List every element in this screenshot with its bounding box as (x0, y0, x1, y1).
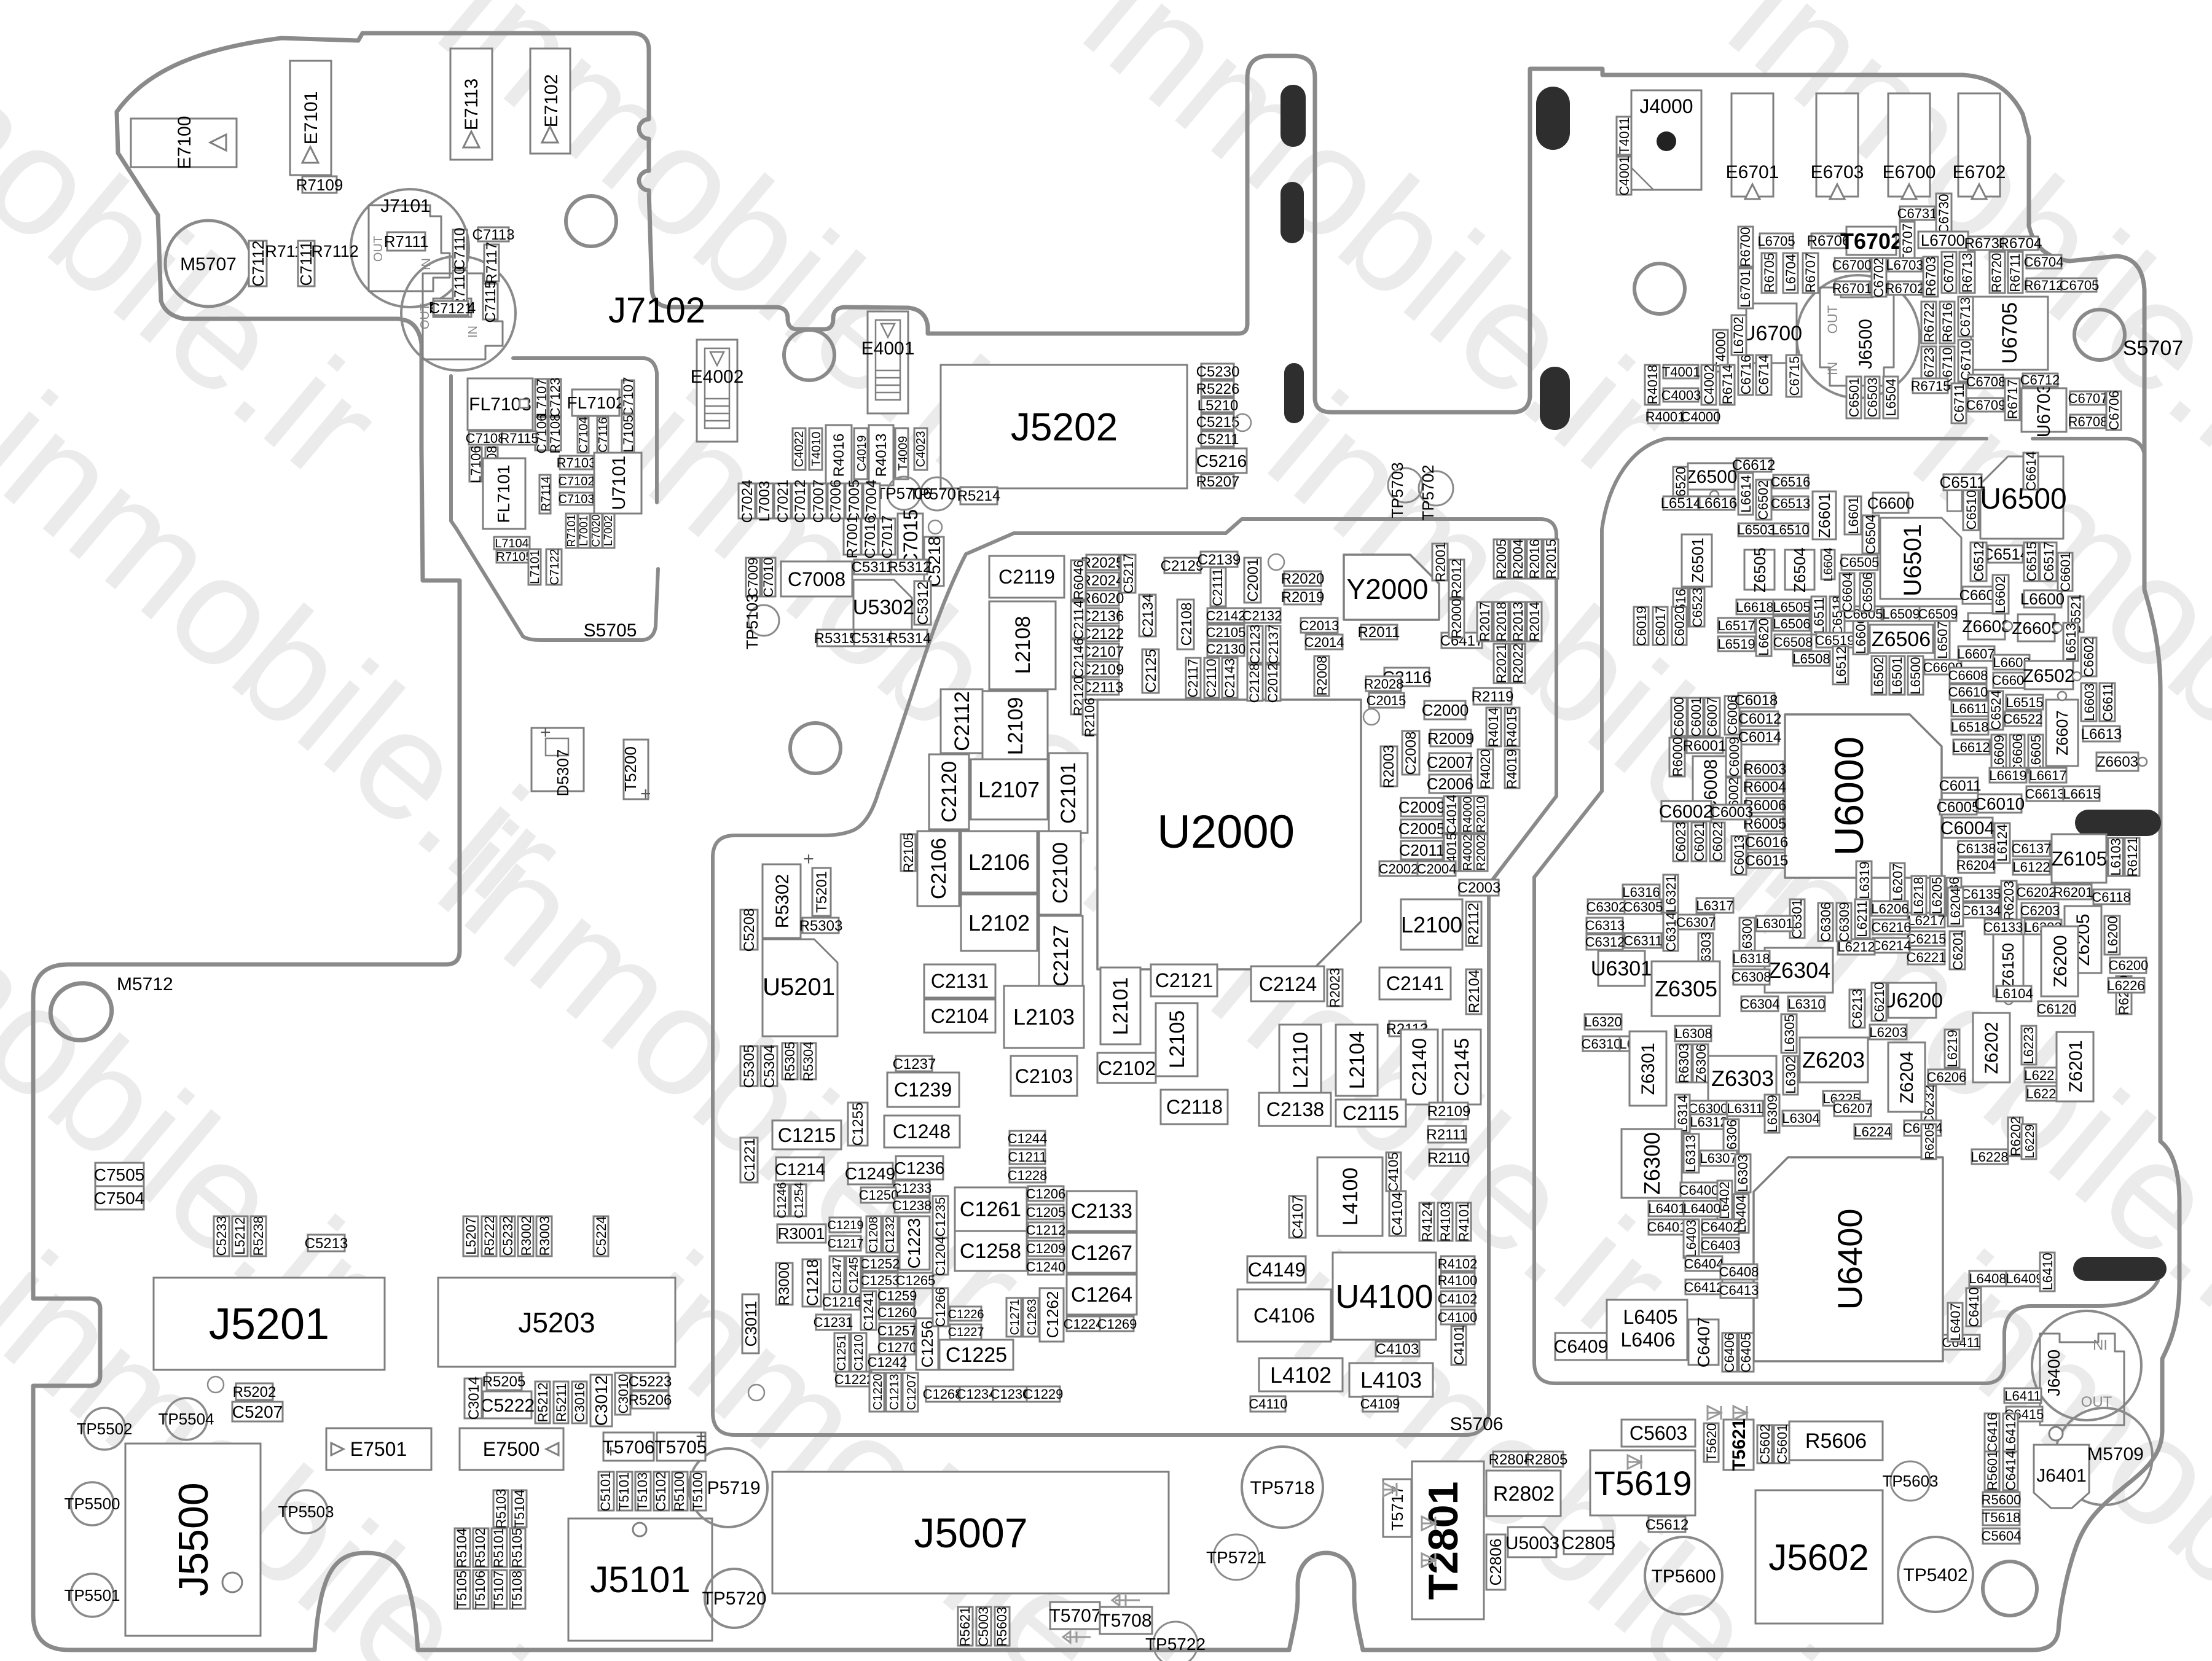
svg-text:C7021: C7021 (775, 480, 791, 523)
svg-text:C2805: C2805 (1561, 1533, 1615, 1554)
svg-text:C6405: C6405 (1738, 1333, 1754, 1373)
svg-text:L6518: L6518 (1951, 719, 1988, 735)
svg-text:TP5718: TP5718 (1250, 1478, 1314, 1498)
svg-text:C6716: C6716 (1738, 355, 1754, 395)
svg-text:L6321: L6321 (1663, 875, 1679, 912)
svg-text:Z6505: Z6505 (1751, 547, 1769, 593)
svg-text:C2002: C2002 (1379, 861, 1419, 877)
svg-text:R3001: R3001 (778, 1224, 825, 1243)
svg-text:C1246: C1246 (775, 1182, 789, 1219)
svg-text:C7505: C7505 (94, 1165, 145, 1184)
svg-text:C1242: C1242 (868, 1354, 908, 1370)
svg-text:R5105: R5105 (509, 1528, 525, 1568)
svg-text:C6305: C6305 (1623, 899, 1663, 915)
svg-text:C7015: C7015 (900, 509, 922, 567)
svg-text:R5303: R5303 (799, 918, 843, 934)
svg-text:L6519: L6519 (1717, 636, 1755, 652)
svg-text:L6501: L6501 (1889, 657, 1905, 694)
svg-text:C2806: C2806 (1486, 1539, 1505, 1586)
svg-text:C1220: C1220 (871, 1374, 885, 1410)
svg-text:L6229: L6229 (2023, 1124, 2037, 1159)
svg-text:Z6502: Z6502 (2022, 666, 2074, 686)
svg-text:L6513: L6513 (2063, 623, 2079, 660)
svg-text:R6201: R6201 (2053, 885, 2093, 900)
svg-text:C2009: C2009 (1398, 798, 1446, 816)
svg-text:L6207: L6207 (1890, 863, 1905, 901)
svg-text:L6301: L6301 (1755, 916, 1793, 931)
svg-text:J6401: J6401 (2036, 1466, 2087, 1486)
svg-text:Z6204: Z6204 (1897, 1051, 1917, 1103)
svg-text:L6104: L6104 (1995, 986, 2033, 1001)
svg-text:C1271: C1271 (1008, 1299, 1022, 1335)
svg-text:U6703: U6703 (2034, 383, 2054, 437)
svg-text:Z6500: Z6500 (1685, 467, 1737, 487)
svg-text:L6615: L6615 (2063, 786, 2100, 802)
svg-text:L6309: L6309 (1765, 1095, 1780, 1132)
svg-text:T5618: T5618 (1982, 1510, 2020, 1525)
svg-text:C7016: C7016 (862, 515, 879, 559)
svg-text:C2141: C2141 (1386, 972, 1444, 995)
svg-text:C2109: C2109 (1081, 662, 1124, 678)
svg-text:C1205: C1205 (1026, 1205, 1066, 1220)
svg-text:C1258: C1258 (960, 1240, 1021, 1263)
svg-text:E7501: E7501 (350, 1438, 407, 1460)
svg-text:R2005: R2005 (1494, 539, 1509, 579)
svg-text:C1214: C1214 (775, 1160, 826, 1179)
svg-text:C3014: C3014 (466, 1377, 482, 1420)
svg-text:Z6200: Z6200 (2050, 935, 2071, 987)
svg-text:L6616: L6616 (1696, 495, 1738, 512)
svg-text:C5305: C5305 (741, 1045, 758, 1088)
svg-text:C2145: C2145 (1451, 1038, 1473, 1096)
svg-text:C1260: C1260 (877, 1305, 917, 1320)
svg-text:C1207: C1207 (905, 1374, 919, 1410)
svg-text:L6219: L6219 (1945, 1030, 1960, 1067)
svg-text:C6402: C6402 (1701, 1219, 1741, 1235)
svg-text:M5712: M5712 (117, 974, 173, 995)
svg-text:C2012: C2012 (1265, 663, 1281, 703)
svg-text:C7012: C7012 (792, 480, 809, 523)
svg-text:R6716: R6716 (1940, 303, 1955, 343)
svg-text:L6514: L6514 (1661, 495, 1702, 512)
svg-text:C6700: C6700 (1832, 257, 1872, 273)
svg-text:C2138: C2138 (1266, 1098, 1324, 1120)
svg-text:C2117: C2117 (1185, 659, 1201, 697)
svg-text:R6701: R6701 (1832, 281, 1872, 296)
svg-text:TP5721: TP5721 (1206, 1548, 1266, 1567)
svg-text:L2101: L2101 (1109, 977, 1132, 1036)
svg-text:C1215: C1215 (778, 1124, 836, 1146)
svg-text:L6407: L6407 (1948, 1303, 1963, 1340)
svg-text:C1210: C1210 (852, 1335, 866, 1371)
svg-text:R6046: R6046 (1071, 560, 1086, 600)
svg-text:C1244: C1244 (1008, 1131, 1048, 1146)
svg-text:R6704: R6704 (1999, 235, 2042, 252)
svg-text:L6313: L6313 (1683, 1135, 1698, 1172)
svg-text:C4002: C4002 (1701, 365, 1717, 405)
svg-text:C1248: C1248 (893, 1120, 951, 1143)
svg-text:C6524: C6524 (1988, 690, 2004, 730)
svg-text:R5238: R5238 (251, 1216, 266, 1256)
svg-text:L6320: L6320 (1584, 1014, 1622, 1030)
svg-text:R5603: R5603 (994, 1607, 1010, 1647)
svg-text:C6731: C6731 (1897, 206, 1937, 221)
svg-text:C5102: C5102 (653, 1472, 669, 1512)
svg-text:L6302: L6302 (1783, 1056, 1798, 1093)
svg-text:C4014: C4014 (1444, 795, 1459, 835)
svg-text:L6619: L6619 (1989, 768, 2026, 783)
svg-text:C6611: C6611 (2100, 682, 2116, 721)
svg-text:C6308: C6308 (1732, 969, 1771, 985)
svg-text:Z6303: Z6303 (1711, 1066, 1774, 1091)
svg-text:R2025: R2025 (1081, 555, 1124, 571)
svg-text:C2124: C2124 (1259, 973, 1317, 995)
svg-text:L6103: L6103 (2108, 838, 2124, 875)
svg-text:L6224: L6224 (1854, 1124, 1891, 1139)
svg-text:FL7101: FL7101 (494, 465, 513, 523)
svg-text:R6003: R6003 (1743, 761, 1787, 778)
svg-text:TP5603: TP5603 (1882, 1472, 1938, 1490)
svg-text:Z6201: Z6201 (2066, 1040, 2086, 1092)
svg-text:U6000: U6000 (1826, 737, 1872, 856)
svg-text:T4009: T4009 (896, 436, 910, 471)
svg-text:C4003: C4003 (1661, 388, 1701, 403)
svg-text:C6516: C6516 (1771, 474, 1811, 490)
svg-text:E7100: E7100 (175, 116, 195, 170)
svg-text:L2107: L2107 (978, 777, 1040, 802)
svg-text:R2004: R2004 (1510, 539, 1526, 579)
svg-text:L6310: L6310 (1787, 996, 1825, 1012)
svg-text:C2133: C2133 (1071, 1200, 1132, 1223)
svg-text:L6500: L6500 (1908, 657, 1923, 694)
svg-text:L6405: L6405 (1623, 1306, 1678, 1328)
svg-text:J7101: J7101 (380, 196, 431, 216)
svg-text:R2010: R2010 (1475, 797, 1488, 833)
svg-text:R5312: R5312 (888, 559, 931, 576)
svg-text:L6602: L6602 (1993, 576, 2008, 613)
svg-text:T4001: T4001 (1662, 364, 1700, 380)
svg-text:L6200: L6200 (2105, 916, 2120, 953)
svg-text:C1255: C1255 (850, 1103, 866, 1146)
svg-text:L6703: L6703 (1886, 257, 1923, 273)
svg-text:L4102: L4102 (1270, 1362, 1332, 1388)
svg-text:L6515: L6515 (2006, 695, 2043, 710)
svg-text:C6017: C6017 (1653, 606, 1668, 646)
svg-text:R5211: R5211 (554, 1383, 569, 1421)
svg-text:C4023: C4023 (914, 431, 928, 467)
svg-text:R7117: R7117 (484, 242, 500, 284)
svg-text:C2140: C2140 (1408, 1038, 1430, 1096)
svg-text:U5003: U5003 (1505, 1533, 1559, 1554)
svg-text:Z6202: Z6202 (1982, 1022, 2002, 1074)
svg-text:L7001: L7001 (578, 515, 590, 546)
svg-text:C6502: C6502 (1755, 480, 1771, 520)
svg-text:L6410: L6410 (2040, 1253, 2055, 1290)
svg-text:R2020: R2020 (1281, 571, 1325, 587)
svg-text:R2023: R2023 (1327, 968, 1343, 1008)
svg-text:C4106: C4106 (1253, 1304, 1315, 1327)
svg-text:C1226: C1226 (948, 1308, 984, 1321)
svg-text:FL7102: FL7102 (567, 393, 626, 412)
svg-text:TP5502: TP5502 (76, 1420, 132, 1438)
svg-text:R5601: R5601 (1985, 1451, 2000, 1491)
svg-text:L2102: L2102 (968, 910, 1030, 936)
svg-text:C1257: C1257 (877, 1323, 917, 1339)
svg-text:Z6304: Z6304 (1768, 958, 1830, 983)
svg-text:R4014: R4014 (1486, 708, 1501, 748)
svg-text:L6607: L6607 (1957, 646, 1994, 662)
svg-text:R5102: R5102 (473, 1528, 488, 1568)
svg-text:C7107: C7107 (621, 377, 636, 417)
svg-text:J5007: J5007 (914, 1510, 1027, 1557)
svg-text:C6307: C6307 (1676, 915, 1716, 930)
svg-text:C6004: C6004 (1940, 818, 1994, 838)
svg-text:L6502: L6502 (1871, 657, 1886, 694)
svg-text:E6701: E6701 (1726, 162, 1779, 182)
svg-text:C3012: C3012 (592, 1375, 611, 1426)
svg-text:Z6504: Z6504 (1790, 547, 1809, 593)
svg-text:C7008: C7008 (788, 568, 845, 590)
svg-text:TP5703: TP5703 (1388, 462, 1406, 518)
svg-text:C5224: C5224 (594, 1216, 609, 1256)
svg-text:C6200: C6200 (2109, 958, 2149, 973)
svg-text:C5602: C5602 (1757, 1425, 1773, 1464)
svg-text:T5201: T5201 (814, 871, 830, 913)
svg-text:C4103: C4103 (1376, 1341, 1419, 1358)
svg-text:C6612: C6612 (1732, 457, 1776, 474)
svg-text:C5304: C5304 (761, 1045, 778, 1088)
svg-text:OUT: OUT (372, 236, 385, 262)
svg-text:C6018: C6018 (1735, 692, 1778, 709)
svg-text:L6508: L6508 (1792, 651, 1830, 666)
svg-text:C5603: C5603 (1630, 1422, 1687, 1444)
svg-text:C6401: C6401 (1647, 1219, 1687, 1235)
svg-text:C6213: C6213 (1849, 989, 1865, 1029)
svg-text:C5213: C5213 (305, 1235, 348, 1252)
svg-text:L6601: L6601 (1846, 496, 1861, 534)
svg-text:C6412: C6412 (1684, 1280, 1724, 1295)
svg-text:C1267: C1267 (1071, 1241, 1132, 1265)
svg-text:R5600: R5600 (1982, 1492, 2022, 1507)
svg-text:C2111: C2111 (1210, 568, 1225, 606)
svg-text:C6019: C6019 (1634, 606, 1649, 646)
svg-text:C7116: C7116 (597, 417, 610, 452)
svg-text:C1223: C1223 (904, 1218, 924, 1269)
svg-text:Z6300: Z6300 (1639, 1132, 1665, 1195)
svg-text:J5201: J5201 (209, 1300, 329, 1349)
svg-text:C6604: C6604 (1840, 573, 1855, 612)
svg-text:C4104: C4104 (1389, 1192, 1406, 1236)
svg-text:R6700: R6700 (1738, 227, 1753, 267)
svg-text:R2022: R2022 (1510, 644, 1526, 684)
svg-text:C2118: C2118 (1166, 1096, 1223, 1118)
svg-text:R2016: R2016 (1527, 539, 1542, 579)
svg-text:Z6601: Z6601 (1815, 493, 1834, 538)
svg-text:C2000: C2000 (1422, 701, 1469, 719)
svg-text:C7010: C7010 (761, 558, 776, 598)
svg-text:C1219: C1219 (828, 1219, 864, 1232)
svg-text:R5202: R5202 (233, 1384, 276, 1401)
svg-text:R2011: R2011 (1358, 624, 1400, 641)
svg-text:C6406: C6406 (1722, 1333, 1737, 1373)
svg-text:M5709: M5709 (2087, 1444, 2144, 1464)
svg-text:R2111: R2111 (1426, 1127, 1467, 1143)
svg-text:T5107: T5107 (491, 1571, 506, 1609)
svg-text:L6318: L6318 (1732, 951, 1770, 966)
svg-text:C1213: C1213 (888, 1374, 901, 1410)
svg-text:C6400: C6400 (1679, 1182, 1719, 1198)
svg-text:L6504: L6504 (1883, 378, 1899, 416)
svg-text:R3003: R3003 (537, 1216, 552, 1256)
svg-text:+: + (540, 722, 551, 743)
svg-text:T5104: T5104 (512, 1490, 527, 1528)
svg-text:C2103: C2103 (1015, 1065, 1073, 1087)
svg-text:L6226: L6226 (2107, 978, 2144, 993)
svg-text:C7115: C7115 (482, 281, 499, 323)
svg-text:L6705: L6705 (1757, 233, 1795, 249)
svg-text:R7111: R7111 (384, 232, 429, 251)
svg-text:L6609: L6609 (1991, 735, 2007, 772)
svg-text:C2123: C2123 (1247, 625, 1263, 665)
svg-text:C1228: C1228 (1008, 1168, 1048, 1183)
svg-text:R7103: R7103 (557, 455, 597, 471)
svg-text:L6409: L6409 (2006, 1271, 2043, 1286)
svg-text:C2108: C2108 (1179, 603, 1195, 646)
svg-text:C7123: C7123 (547, 378, 563, 418)
svg-text:L6700: L6700 (1921, 231, 1965, 249)
svg-text:C1239: C1239 (894, 1079, 952, 1101)
svg-text:R2019: R2019 (1281, 589, 1325, 606)
svg-text:C7121: C7121 (429, 300, 473, 317)
svg-text:U7101: U7101 (609, 456, 629, 510)
svg-text:C6201: C6201 (1950, 931, 1966, 971)
svg-text:C2102: C2102 (1098, 1057, 1156, 1079)
svg-text:C5612: C5612 (1645, 1517, 1689, 1533)
svg-text:L4103: L4103 (1360, 1367, 1422, 1393)
svg-text:T5200: T5200 (621, 746, 640, 792)
svg-text:R6203: R6203 (2001, 881, 2017, 921)
svg-text:C4000: C4000 (1681, 409, 1721, 424)
svg-text:L5210: L5210 (1198, 397, 1239, 414)
svg-text:L6311: L6311 (1727, 1101, 1763, 1116)
svg-text:E7113: E7113 (461, 79, 482, 131)
svg-text:R2119: R2119 (1472, 689, 1514, 705)
svg-text:C5233: C5233 (214, 1216, 229, 1256)
svg-text:L6600: L6600 (2020, 590, 2065, 608)
svg-text:+: + (696, 1426, 707, 1447)
svg-text:C5232: C5232 (500, 1216, 516, 1256)
svg-text:C6023: C6023 (1673, 822, 1688, 862)
svg-text:C6511: C6511 (1940, 473, 1986, 491)
svg-text:R2104: R2104 (1466, 970, 1483, 1014)
svg-text:C6503: C6503 (1865, 378, 1880, 418)
svg-text:C5230: C5230 (1196, 364, 1240, 380)
svg-text:R6020: R6020 (1081, 590, 1124, 607)
svg-text:R2021: R2021 (1494, 644, 1509, 684)
svg-text:OUT: OUT (1825, 305, 1840, 334)
svg-text:T5100: T5100 (690, 1472, 705, 1511)
svg-text:J5202: J5202 (1011, 405, 1118, 449)
svg-text:C2113: C2113 (1081, 679, 1124, 696)
svg-text:L2104: L2104 (1346, 1031, 1369, 1090)
svg-text:R2112: R2112 (1465, 903, 1482, 945)
svg-text:T5105: T5105 (454, 1571, 469, 1609)
svg-text:R7105: R7105 (496, 550, 533, 564)
svg-text:C7102: C7102 (559, 475, 595, 488)
svg-text:R2009: R2009 (1427, 729, 1475, 748)
svg-text:C6416: C6416 (1985, 1413, 2000, 1453)
svg-text:L6124: L6124 (1994, 824, 2010, 861)
svg-text:L6507: L6507 (1935, 621, 1950, 659)
svg-text:TP5504: TP5504 (158, 1410, 214, 1428)
svg-text:C2142: C2142 (1206, 608, 1246, 623)
svg-text:C6313: C6313 (1585, 918, 1625, 933)
svg-text:C2106: C2106 (927, 838, 951, 899)
svg-text:C7007: C7007 (810, 480, 827, 523)
svg-text:C1249: C1249 (845, 1164, 896, 1183)
svg-text:C2120: C2120 (938, 761, 961, 823)
svg-text:TP5722: TP5722 (1145, 1635, 1206, 1654)
svg-text:T5106: T5106 (473, 1571, 488, 1609)
svg-text:Z6203: Z6203 (1802, 1047, 1865, 1073)
svg-text:C2130: C2130 (1206, 641, 1246, 657)
svg-text:C6707: C6707 (2068, 391, 2108, 406)
svg-text:R7114: R7114 (539, 476, 553, 511)
svg-text:R4020: R4020 (1478, 749, 1493, 789)
svg-text:C1241: C1241 (861, 1291, 876, 1331)
svg-text:C7024: C7024 (739, 480, 756, 523)
svg-text:R5212: R5212 (535, 1383, 551, 1423)
svg-text:C2101: C2101 (1057, 762, 1080, 824)
svg-text:C6608: C6608 (1948, 668, 1988, 683)
svg-text:C2125: C2125 (1143, 649, 1159, 693)
svg-text:R7108: R7108 (547, 414, 563, 454)
svg-text:C6413: C6413 (1719, 1283, 1759, 1298)
svg-text:L2105: L2105 (1166, 1010, 1189, 1069)
svg-text:C2136: C2136 (1081, 608, 1124, 625)
svg-text:C2014: C2014 (1304, 635, 1344, 650)
svg-text:C1206: C1206 (1026, 1186, 1066, 1202)
svg-text:C6202: C6202 (2017, 885, 2057, 900)
svg-text:R7001: R7001 (844, 515, 861, 559)
svg-text:R4100: R4100 (1438, 1273, 1478, 1288)
svg-text:C4001: C4001 (1617, 156, 1632, 196)
svg-text:C1264: C1264 (1071, 1283, 1132, 1307)
svg-text:C6601: C6601 (2058, 552, 2073, 592)
svg-text:L2110: L2110 (1289, 1032, 1312, 1088)
svg-text:C6522: C6522 (2003, 711, 2043, 727)
svg-text:C1261: C1261 (960, 1198, 1021, 1221)
svg-text:C6135: C6135 (1961, 886, 2001, 902)
svg-text:C6120: C6120 (2037, 1001, 2077, 1017)
svg-text:C3016: C3016 (572, 1383, 587, 1423)
svg-text:L6314: L6314 (1675, 1095, 1690, 1132)
svg-text:C6312: C6312 (1585, 934, 1625, 950)
svg-text:C6403: C6403 (1701, 1238, 1741, 1253)
svg-text:T5108: T5108 (509, 1571, 525, 1609)
svg-text:C6310: C6310 (1582, 1036, 1622, 1052)
svg-text:C4101: C4101 (1451, 1326, 1467, 1366)
svg-text:L6620: L6620 (1756, 618, 1771, 655)
svg-text:L2103: L2103 (1013, 1004, 1075, 1030)
svg-text:C7504: C7504 (94, 1189, 145, 1208)
svg-text:C1262: C1262 (1043, 1291, 1062, 1339)
svg-text:C6014: C6014 (1738, 729, 1782, 746)
svg-text:IN: IN (466, 326, 480, 338)
svg-text:L6511: L6511 (1811, 597, 1827, 634)
svg-text:T5619: T5619 (1594, 1464, 1692, 1503)
svg-text:U6400: U6400 (1830, 1208, 1869, 1310)
